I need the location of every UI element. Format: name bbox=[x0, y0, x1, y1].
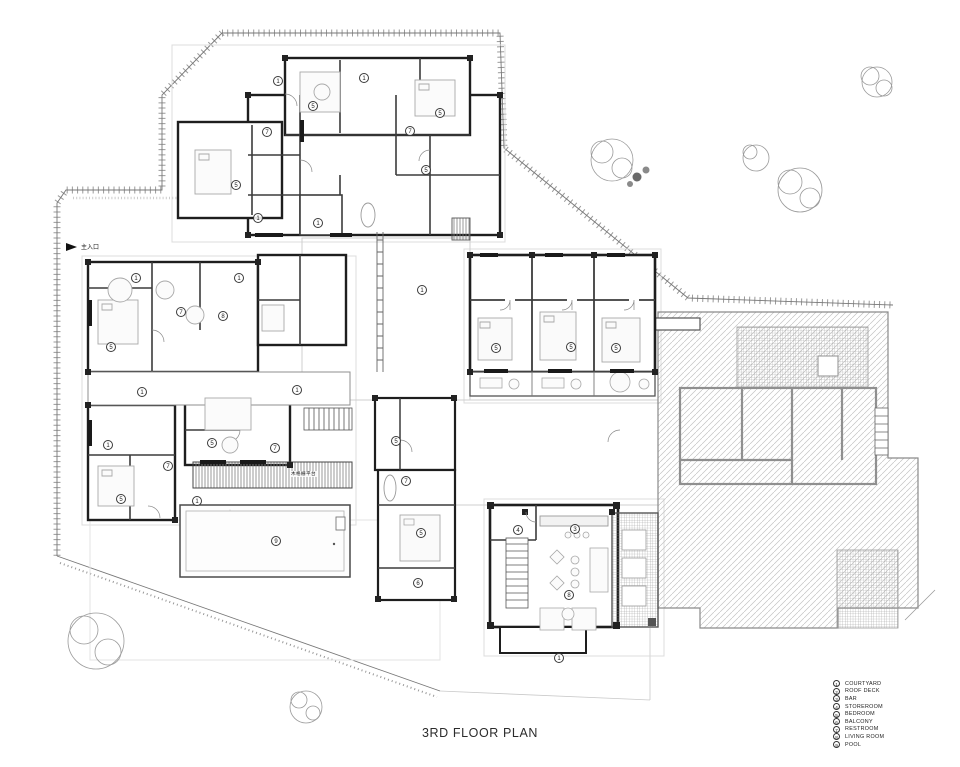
room-marker: 1 bbox=[253, 213, 263, 223]
pool bbox=[612, 513, 658, 627]
pool-ladder bbox=[336, 517, 345, 530]
legend-item-number: 5 bbox=[833, 711, 840, 718]
room-marker: 1 bbox=[131, 273, 141, 283]
room-marker: 8 bbox=[218, 311, 228, 321]
room-marker: 7 bbox=[176, 307, 186, 317]
room-marker: 7 bbox=[401, 476, 411, 486]
legend-item-label: BAR bbox=[845, 696, 857, 702]
room-marker: 5 bbox=[566, 342, 576, 352]
terrace-bridge bbox=[655, 318, 700, 330]
room-marker: 4 bbox=[513, 525, 523, 535]
room-marker: 1 bbox=[137, 387, 147, 397]
bathtub-2 bbox=[384, 475, 396, 501]
beds bbox=[478, 312, 640, 362]
legend-item: 6BALCONY bbox=[833, 718, 884, 726]
room-marker: 5 bbox=[435, 108, 445, 118]
room-marker: 1 bbox=[192, 496, 202, 506]
room-marker: 3 bbox=[570, 524, 580, 534]
room-marker: 1 bbox=[103, 440, 113, 450]
legend-item: 9POOL bbox=[833, 741, 884, 749]
room-marker: 1 bbox=[234, 273, 244, 283]
room-marker: 7 bbox=[270, 443, 280, 453]
floorplan-canvas: 151577551111785111517751555575643819 主入口… bbox=[0, 0, 960, 767]
legend-item-label: STOREROOM bbox=[845, 704, 883, 710]
legend-item: 2ROOF DECK bbox=[833, 688, 884, 696]
legend-item: 1COURTYARD bbox=[833, 680, 884, 688]
room-marker: 7 bbox=[405, 126, 415, 136]
terrace-ladder bbox=[875, 408, 888, 455]
room-marker: 7 bbox=[163, 461, 173, 471]
bath-core bbox=[300, 195, 342, 235]
room-marker: 9 bbox=[271, 536, 281, 546]
legend-item-number: 4 bbox=[833, 703, 840, 710]
room-marker: 6 bbox=[413, 578, 423, 588]
room-marker: 5 bbox=[231, 180, 241, 190]
room-marker: 7 bbox=[262, 127, 272, 137]
room-marker: 1 bbox=[313, 218, 323, 228]
legend-item-label: POOL bbox=[845, 742, 861, 748]
room-marker: 5 bbox=[207, 438, 217, 448]
entrance-arrow-icon bbox=[66, 243, 77, 251]
terrace-grid-zone bbox=[737, 327, 868, 387]
room-marker: 5 bbox=[106, 342, 116, 352]
bathtub bbox=[361, 203, 375, 227]
entrance-annotation: 主入口 bbox=[66, 242, 99, 251]
legend-item-number: 9 bbox=[833, 741, 840, 748]
louver-strip bbox=[193, 462, 352, 488]
legend-item-label: BALCONY bbox=[845, 719, 873, 725]
legend-item-label: BEDROOM bbox=[845, 711, 875, 717]
tree-icon bbox=[591, 139, 650, 187]
room-marker: 5 bbox=[116, 494, 126, 504]
room-marker: 5 bbox=[421, 165, 431, 175]
lap-pool bbox=[180, 505, 350, 577]
room-marker: 5 bbox=[491, 343, 501, 353]
room-marker: 1 bbox=[554, 653, 564, 663]
legend-item-number: 1 bbox=[833, 680, 840, 687]
stair-horizontal bbox=[304, 408, 352, 430]
right-wing bbox=[470, 255, 655, 396]
legend-item-number: 6 bbox=[833, 718, 840, 725]
legend-item-number: 3 bbox=[833, 695, 840, 702]
room-marker: 5 bbox=[308, 101, 318, 111]
entrance-label: 主入口 bbox=[81, 242, 99, 251]
tree-icon bbox=[778, 168, 822, 212]
mid-bottom-suite bbox=[375, 398, 455, 600]
legend-item-label: ROOF DECK bbox=[845, 688, 880, 694]
roof-terrace bbox=[655, 312, 935, 628]
terrace-grid-zone-2 bbox=[837, 550, 898, 628]
legend-item: 3BAR bbox=[833, 695, 884, 703]
room-marker: 5 bbox=[611, 343, 621, 353]
louver-label: 木格栅平台 bbox=[290, 471, 317, 477]
room-marker: 5 bbox=[391, 436, 401, 446]
tree-icon bbox=[290, 691, 322, 723]
floor-plan-drawing bbox=[0, 0, 960, 767]
pool-pier bbox=[648, 618, 656, 626]
room-marker: 1 bbox=[417, 285, 427, 295]
room-marker: 1 bbox=[273, 76, 283, 86]
stair-small bbox=[452, 218, 470, 240]
tree-icon bbox=[68, 613, 124, 669]
room-marker: 1 bbox=[359, 73, 369, 83]
legend-item-label: COURTYARD bbox=[845, 681, 881, 687]
bottom-center-block bbox=[490, 505, 618, 653]
tree-icon bbox=[861, 67, 892, 97]
room-marker: 5 bbox=[416, 528, 426, 538]
page-title: 3RD FLOOR PLAN bbox=[0, 726, 960, 740]
room-marker: 8 bbox=[564, 590, 574, 600]
skylight bbox=[818, 356, 838, 376]
tree-icon bbox=[743, 145, 769, 171]
legend-item-number: 2 bbox=[833, 688, 840, 695]
room-marker: 1 bbox=[292, 385, 302, 395]
glass-wall bbox=[377, 232, 383, 372]
interior-stair bbox=[506, 538, 528, 608]
legend-item: 4STOREROOM bbox=[833, 703, 884, 711]
legend-item: 5BEDROOM bbox=[833, 710, 884, 718]
